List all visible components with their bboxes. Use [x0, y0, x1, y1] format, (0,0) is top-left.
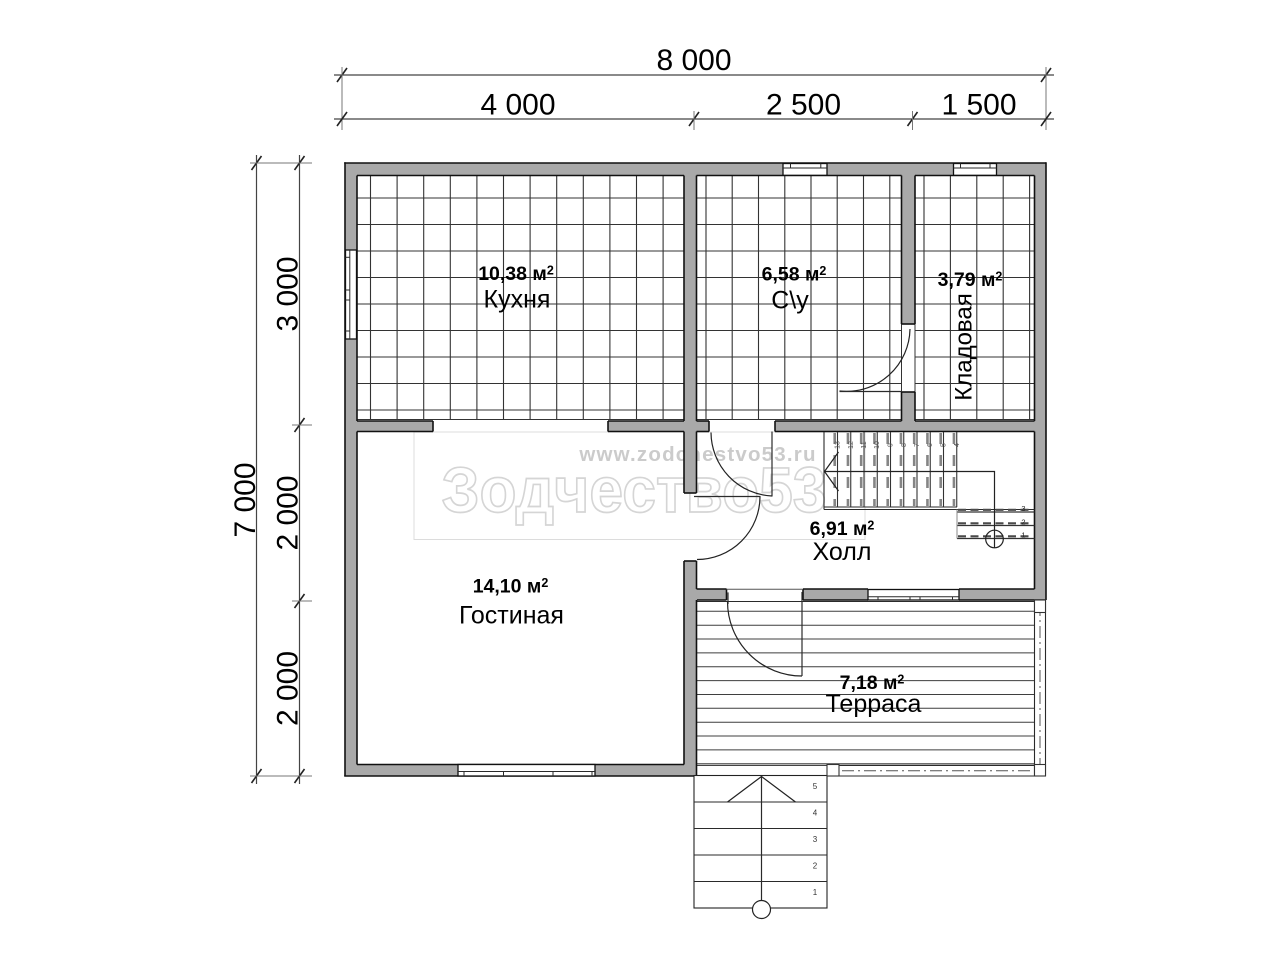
svg-text:3,79 м2: 3,79 м2	[938, 269, 1003, 291]
svg-text:10,38 м2: 10,38 м2	[478, 263, 554, 285]
svg-text:Зодчество53: Зодчество53	[442, 454, 827, 526]
svg-text:11: 11	[861, 441, 868, 448]
svg-text:10: 10	[874, 441, 881, 449]
svg-text:9: 9	[888, 443, 895, 447]
svg-text:1: 1	[1021, 531, 1025, 540]
svg-text:5: 5	[813, 782, 818, 791]
svg-text:4: 4	[954, 443, 961, 447]
svg-text:14,10 м2: 14,10 м2	[473, 576, 549, 598]
svg-text:6,91 м2: 6,91 м2	[810, 518, 875, 540]
svg-text:6: 6	[927, 443, 934, 447]
svg-text:3: 3	[813, 835, 818, 844]
svg-text:Кладовая: Кладовая	[950, 293, 977, 401]
svg-text:С\у: С\у	[771, 287, 809, 315]
svg-text:8: 8	[901, 443, 908, 447]
svg-text:Холл: Холл	[813, 538, 872, 566]
svg-text:4 000: 4 000	[480, 89, 555, 122]
svg-text:2: 2	[1021, 518, 1025, 527]
svg-text:5: 5	[941, 443, 948, 447]
svg-text:7: 7	[914, 443, 921, 447]
svg-text:2 000: 2 000	[272, 651, 305, 726]
svg-text:12: 12	[848, 441, 855, 449]
svg-text:Гостиная: Гостиная	[459, 602, 564, 630]
svg-text:3 000: 3 000	[272, 256, 305, 331]
svg-text:3: 3	[1021, 504, 1025, 513]
svg-text:Терраса: Терраса	[826, 690, 922, 718]
svg-text:13: 13	[835, 441, 842, 449]
svg-text:7 000: 7 000	[229, 462, 262, 537]
svg-text:4: 4	[813, 809, 818, 818]
svg-text:Кухня: Кухня	[484, 286, 551, 314]
svg-text:2 500: 2 500	[766, 89, 841, 122]
svg-text:8 000: 8 000	[656, 44, 731, 77]
svg-text:2: 2	[813, 862, 818, 871]
svg-text:2 000: 2 000	[272, 475, 305, 550]
svg-text:1: 1	[813, 888, 818, 897]
svg-text:1 500: 1 500	[941, 89, 1016, 122]
svg-text:6,58 м2: 6,58 м2	[762, 264, 827, 286]
